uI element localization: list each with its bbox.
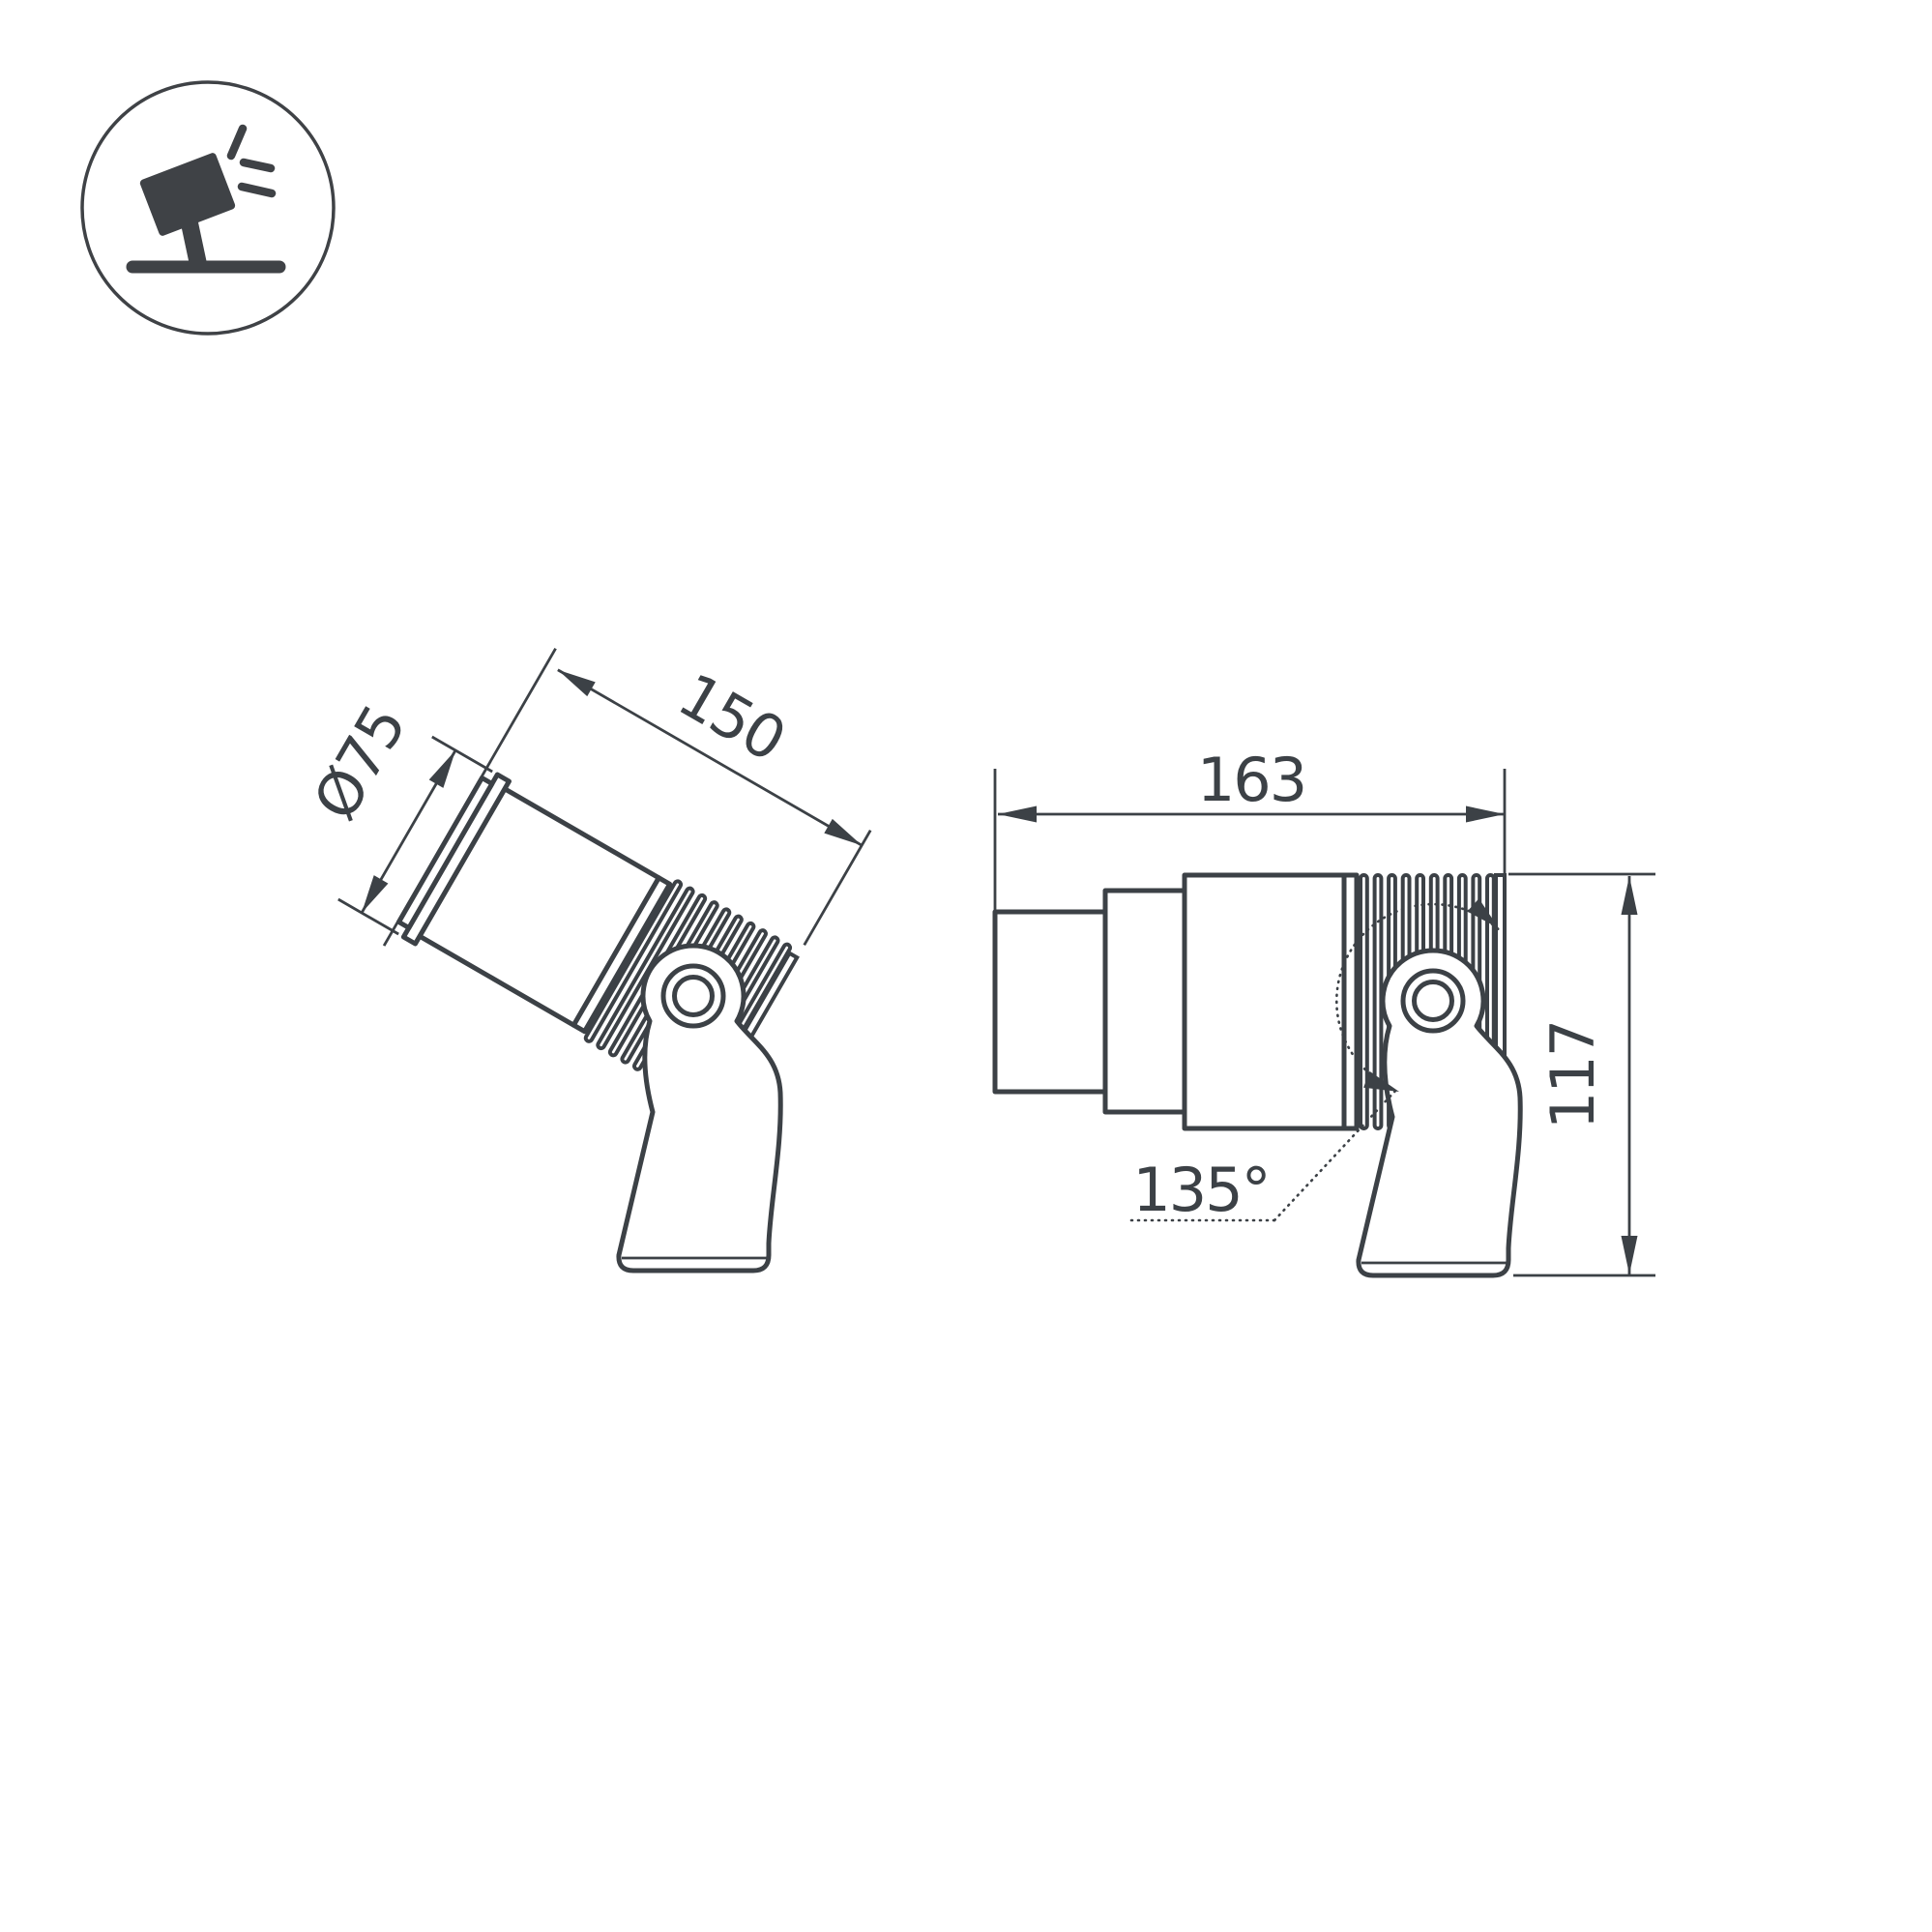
height-dimension-117: 117 [1508,874,1655,1275]
dimension-label-angle-135: 135° [1132,1155,1269,1225]
adjustable-spotlight-icon [82,82,334,334]
pivot-ring-inner [675,978,713,1015]
collar-section [1344,875,1357,1128]
drawing-page: Ø75 150 [0,0,1932,1932]
icon-light-rays [231,129,272,193]
dimension-label-length-163: 163 [1197,745,1305,815]
mid-section [1105,891,1185,1112]
dimension-label-height-117: 117 [1537,1021,1608,1129]
icon-lamp-head [139,152,237,237]
left-view-drawing: Ø75 150 [256,519,903,1271]
rear-gland-section [995,912,1105,1092]
right-view-drawing: 163 117 135° [995,745,1655,1275]
technical-drawing: Ø75 150 [0,0,1932,1932]
pivot-ring-inner [1415,982,1452,1020]
dimension-label-length-150: 150 [667,659,797,775]
main-body-section [1185,875,1344,1128]
dimension-label-diameter: Ø75 [300,694,420,832]
